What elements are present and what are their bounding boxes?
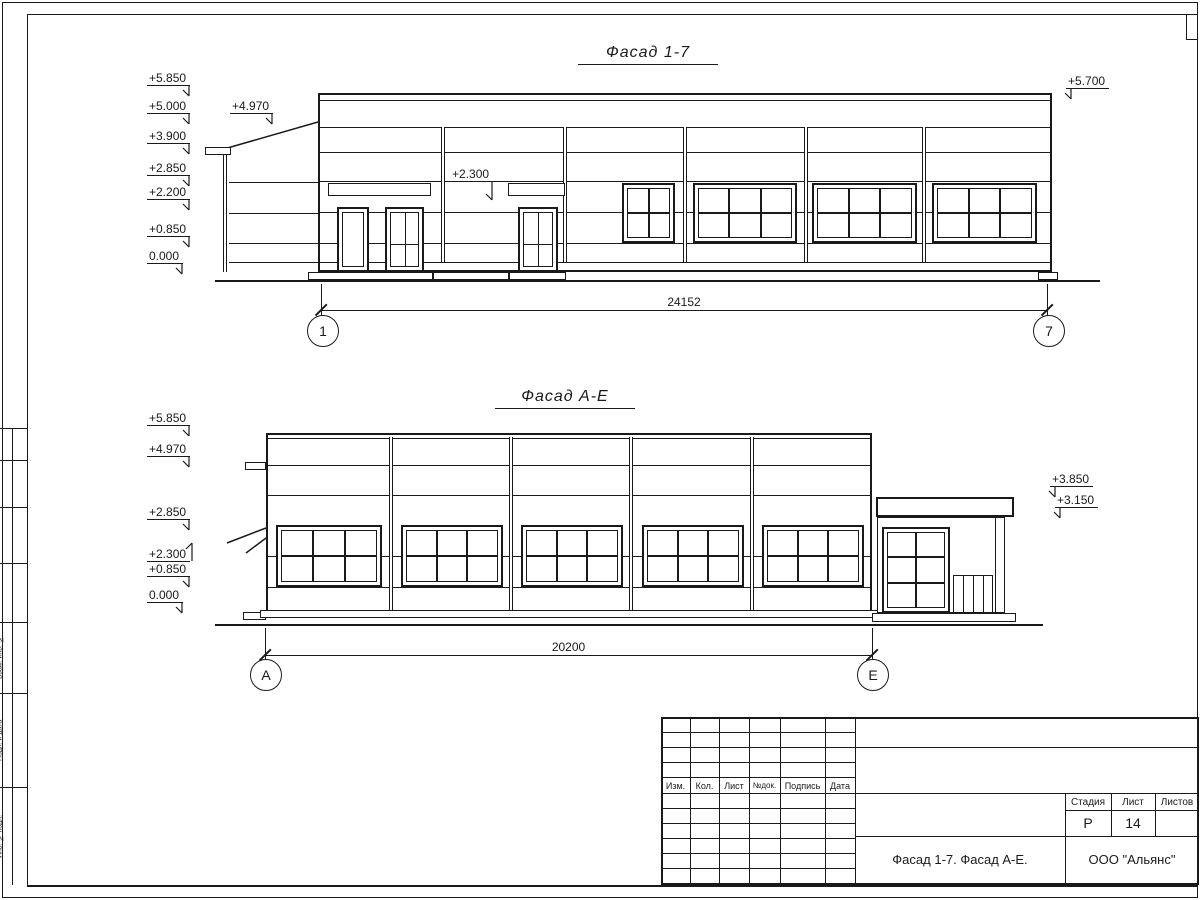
title-block-line bbox=[690, 717, 691, 885]
door-canopy-band bbox=[328, 183, 431, 196]
pilaster bbox=[441, 127, 445, 262]
title-block-line bbox=[661, 808, 855, 809]
sheets-value bbox=[1155, 810, 1199, 836]
title-block-line bbox=[661, 732, 855, 733]
title-block-line bbox=[855, 747, 1199, 748]
title-block-line bbox=[661, 838, 855, 839]
porch-fascia bbox=[205, 147, 231, 155]
door-canopy-band bbox=[508, 183, 565, 196]
wall-ledge bbox=[245, 462, 266, 470]
axis-circle-a: А bbox=[250, 659, 282, 691]
louver-line bbox=[963, 575, 964, 613]
elevation-mark: +2.300 bbox=[450, 168, 493, 182]
plinth-band bbox=[260, 610, 878, 618]
plinth-step bbox=[308, 272, 433, 280]
frame-bottom-line bbox=[27, 885, 1198, 887]
window bbox=[521, 525, 623, 587]
elevation-mark: +5.850 bbox=[147, 412, 190, 426]
column-header-list: Лист bbox=[719, 778, 749, 793]
side-stamp-row bbox=[0, 507, 27, 508]
facade-1-7-title: Фасад 1-7 bbox=[578, 44, 718, 65]
dimension-label: 20200 bbox=[265, 640, 872, 654]
frame-corner-box bbox=[1186, 14, 1198, 40]
elevation-mark: +5.850 bbox=[147, 72, 190, 86]
drawing-sheet: Взам. инв. № Подп. и дата Инв. № подл. Ф… bbox=[0, 0, 1200, 900]
drawing-name: Фасад 1-7. Фасад А-Е. bbox=[855, 836, 1065, 883]
axis-circle-1: 1 bbox=[307, 315, 339, 347]
sheet-value: 14 bbox=[1111, 810, 1155, 836]
elevation-mark: +2.300 bbox=[147, 548, 190, 562]
elevation-mark: +3.900 bbox=[147, 130, 190, 144]
side-stamp-row bbox=[0, 460, 27, 461]
elevation-mark: +0.850 bbox=[147, 563, 190, 577]
plinth-step bbox=[1038, 272, 1058, 280]
column-header-ndok: №док. bbox=[749, 778, 780, 793]
elevation-mark: +5.700 bbox=[1066, 75, 1109, 89]
title-block-line bbox=[661, 793, 855, 794]
window bbox=[401, 525, 503, 587]
pilaster bbox=[750, 437, 754, 610]
column-header-kol: Кол. bbox=[690, 778, 719, 793]
window bbox=[762, 525, 864, 587]
title-block-line bbox=[719, 717, 720, 885]
elevation-mark: +0.850 bbox=[147, 223, 190, 237]
ground-line bbox=[215, 624, 1043, 626]
side-stamp-label: Взам. инв. № bbox=[0, 622, 5, 693]
title-block-line bbox=[661, 823, 855, 824]
dimension-line bbox=[265, 655, 872, 656]
elevation-mark: 0.000 bbox=[147, 589, 183, 603]
canopy-slope bbox=[220, 520, 280, 560]
column-header-izm: Изм. bbox=[661, 778, 690, 793]
ground-line bbox=[215, 280, 1100, 282]
title-block-line bbox=[780, 717, 781, 885]
window bbox=[276, 525, 382, 587]
side-stamp-row bbox=[0, 428, 27, 429]
porch-siding-line bbox=[229, 213, 318, 214]
pilaster bbox=[683, 127, 687, 262]
side-stamp-label: Подп. и дата bbox=[0, 693, 5, 787]
elevation-mark: +3.850 bbox=[1050, 473, 1093, 487]
elevation-mark: +2.200 bbox=[147, 186, 190, 200]
elevation-mark: +2.850 bbox=[147, 506, 190, 520]
pilaster bbox=[509, 437, 513, 610]
porch-siding-line bbox=[229, 182, 318, 183]
dimension-line bbox=[321, 310, 1047, 311]
stage-label: Стадия bbox=[1065, 794, 1111, 810]
window bbox=[932, 183, 1037, 243]
elevation-mark: +4.970 bbox=[147, 443, 190, 457]
stage-value: Р bbox=[1065, 810, 1111, 836]
pilaster bbox=[629, 437, 633, 610]
title-block-line bbox=[661, 762, 855, 763]
plinth-step bbox=[509, 272, 566, 280]
annex-plinth bbox=[872, 613, 1016, 622]
axis-circle-7: 7 bbox=[1033, 315, 1065, 347]
extension-line bbox=[1047, 284, 1048, 318]
sheet-label: Лист bbox=[1111, 794, 1155, 810]
frame-left-line bbox=[27, 14, 28, 885]
dimension-label: 24152 bbox=[321, 295, 1047, 309]
side-stamp-row bbox=[0, 563, 27, 564]
window bbox=[642, 525, 744, 587]
side-stamp-label: Инв. № подл. bbox=[0, 787, 5, 885]
title-block-line bbox=[825, 717, 826, 885]
extension-line bbox=[872, 628, 873, 662]
louver-line bbox=[983, 575, 984, 613]
title-block-line bbox=[661, 853, 855, 854]
pilaster bbox=[922, 127, 926, 262]
sheets-label: Листов bbox=[1155, 794, 1199, 810]
column-header-data: Дата bbox=[825, 778, 855, 793]
pilaster bbox=[804, 127, 808, 262]
elevation-mark: +4.970 bbox=[230, 100, 273, 114]
window bbox=[693, 183, 797, 243]
door bbox=[385, 207, 424, 272]
elevation-mark: +3.150 bbox=[1055, 494, 1098, 508]
annex-window bbox=[882, 527, 950, 613]
plinth-step bbox=[433, 272, 509, 280]
title-block-line bbox=[661, 868, 855, 869]
company-name: ООО "Альянс" bbox=[1065, 836, 1199, 883]
window bbox=[622, 183, 675, 243]
door bbox=[518, 207, 558, 272]
porch-column bbox=[223, 155, 227, 272]
annex-roof-slab bbox=[876, 497, 1014, 517]
side-stamp-line bbox=[12, 428, 13, 885]
elevation-mark: 0.000 bbox=[147, 250, 183, 264]
door bbox=[337, 207, 369, 272]
annex-wall-line bbox=[995, 517, 996, 613]
window bbox=[812, 183, 917, 243]
column-header-podpis: Подпись bbox=[780, 778, 825, 793]
elevation-mark: +2.850 bbox=[147, 162, 190, 176]
elevation-mark: +5.000 bbox=[147, 100, 190, 114]
pilaster bbox=[389, 437, 393, 610]
porch-siding-line bbox=[229, 243, 318, 244]
title-block-line bbox=[661, 747, 855, 748]
axis-circle-e: Е bbox=[857, 659, 889, 691]
title-block-line bbox=[749, 717, 750, 885]
facade-a-e-title: Фасад А-Е bbox=[495, 388, 635, 409]
louver-line bbox=[973, 575, 974, 613]
porch-siding-line bbox=[229, 262, 318, 263]
frame-top-line bbox=[27, 14, 1198, 15]
